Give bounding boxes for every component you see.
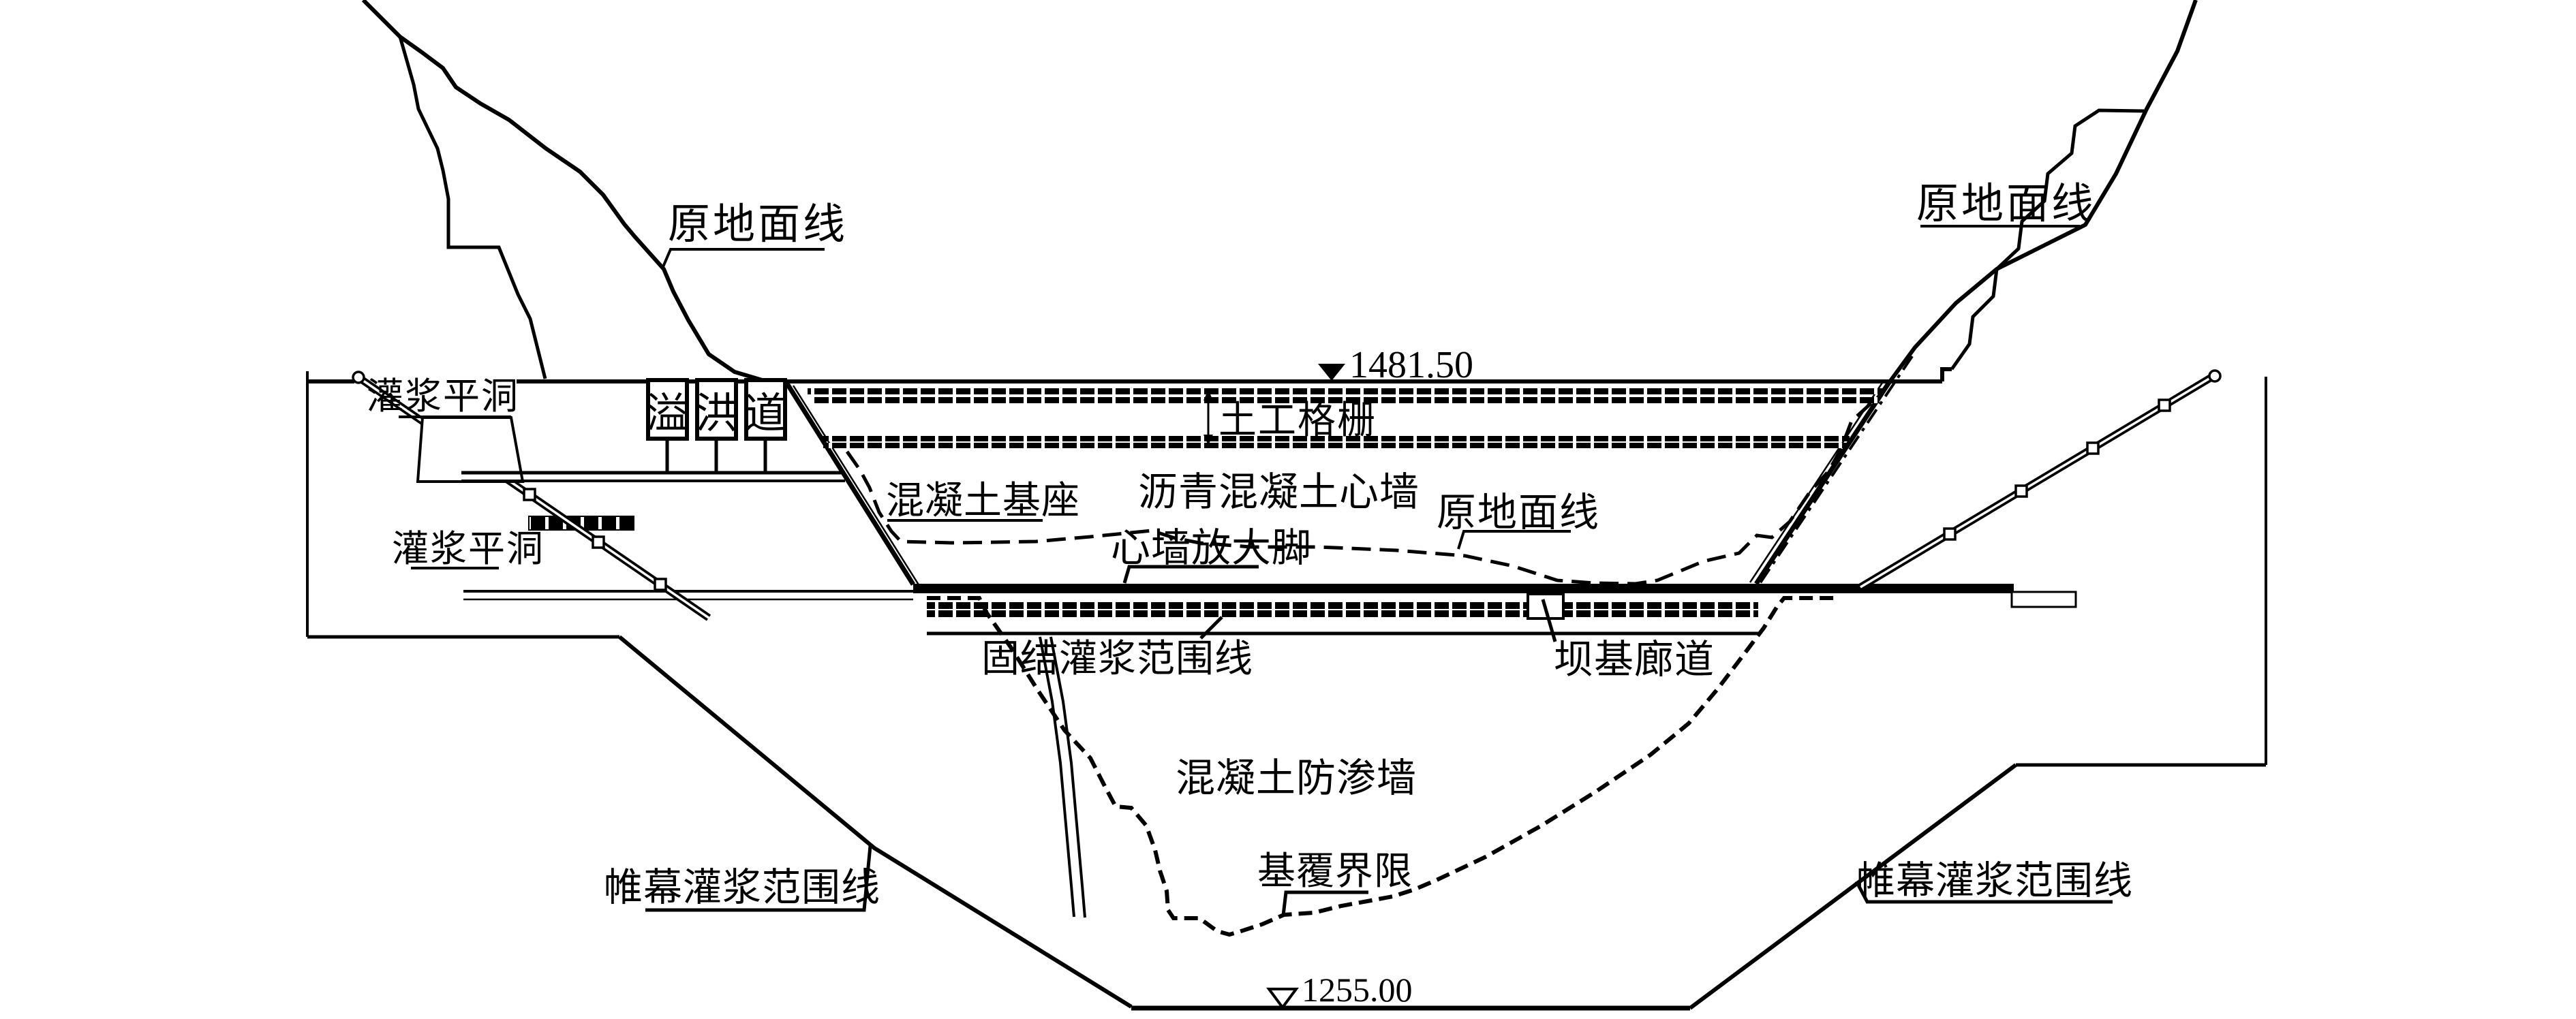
label-geogrid: 土工格栅 [1218, 400, 1377, 442]
adit-right-node [1944, 529, 1955, 539]
label-concrete-cutoff-wall: 混凝土防渗墙 [1176, 756, 1417, 800]
label-grouting-adit-upper: 灌浆平洞 [367, 376, 519, 417]
label-original-ground-left: 原地面线 [668, 202, 848, 248]
adit-left-node [655, 579, 666, 590]
spillway-char-yi: 溢 [646, 391, 688, 437]
base-elevation-value: 1255.00 [1302, 971, 1413, 1009]
label-consolidation-grouting: 固结灌浆范围线 [981, 638, 1253, 680]
foundation-band-right-extension [2012, 592, 2076, 607]
label-concrete-base: 混凝土基座 [886, 480, 1080, 522]
crest-elevation-value: 1481.50 [1349, 344, 1473, 386]
spillway-char-hong: 洪 [695, 391, 737, 437]
spillway-char-dao: 道 [744, 391, 786, 437]
adit-left-portal-cap [353, 372, 364, 383]
consolidation-grouting-strip2 [927, 610, 1758, 617]
adit-left-node [593, 537, 604, 548]
geogrid-band1-strip1 [808, 388, 1882, 394]
foundation-contact-band [913, 584, 2014, 593]
adit-right-node [2159, 400, 2170, 411]
label-curtain-grouting-left: 帷幕灌浆范围线 [604, 866, 880, 909]
adit-right-node [2087, 443, 2098, 454]
label-bedrock-boundary: 基覆界限 [1257, 851, 1413, 893]
drawing-sheet: 溢 洪 道 1481.50 1255.00 原地面线 原地面线 原地面线 灌浆平… [0, 0, 2576, 1019]
label-asphalt-core-wall: 沥青混凝土心墙 [1138, 470, 1420, 514]
label-original-ground-right: 原地面线 [1916, 181, 2096, 228]
adit-right-portal-cap [2209, 371, 2220, 381]
label-core-wall-foot: 心墙放大脚 [1111, 526, 1312, 570]
label-original-ground-mid: 原地面线 [1437, 490, 1600, 535]
label-grouting-adit-lower: 灌浆平洞 [392, 529, 545, 569]
adit-right-node [2016, 486, 2027, 497]
adit-left-node [524, 489, 535, 500]
dam-longitudinal-section: 溢 洪 道 1481.50 1255.00 原地面线 原地面线 原地面线 灌浆平… [0, 0, 2576, 1019]
label-curtain-grouting-right: 帷幕灌浆范围线 [1856, 860, 2133, 903]
label-foundation-gallery: 坝基廊道 [1554, 638, 1715, 682]
consolidation-grouting-strip1 [927, 602, 1758, 609]
geogrid-band2-strip2 [823, 443, 1847, 448]
